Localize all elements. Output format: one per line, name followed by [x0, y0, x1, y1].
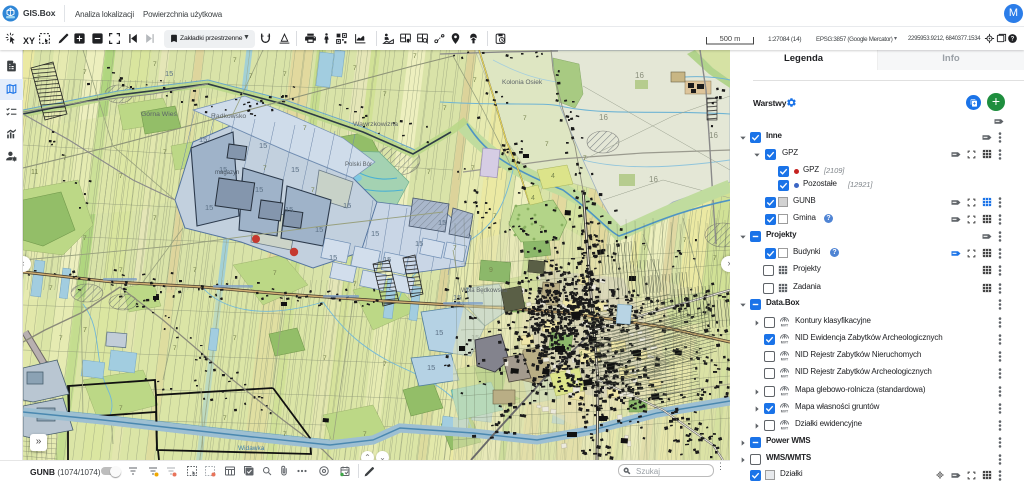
svg-text:7: 7 [249, 73, 253, 80]
svg-text:7: 7 [83, 327, 87, 334]
svg-text:500 m: 500 m [720, 34, 741, 43]
svg-text:15: 15 [259, 141, 267, 150]
svg-text:7: 7 [83, 235, 87, 242]
svg-text:7: 7 [119, 173, 123, 180]
svg-text:16: 16 [649, 175, 658, 184]
svg-text:7: 7 [493, 213, 497, 220]
svg-text:7: 7 [583, 155, 587, 162]
svg-text:7: 7 [49, 285, 53, 292]
svg-text:7: 7 [427, 169, 431, 176]
svg-text:MVT: MVT [781, 357, 789, 361]
svg-text:?: ? [1011, 37, 1015, 43]
svg-text:7: 7 [223, 415, 227, 422]
svg-text:7: 7 [83, 69, 87, 76]
svg-text:16: 16 [709, 131, 718, 140]
svg-text:MVT: MVT [781, 409, 789, 413]
svg-text:4: 4 [551, 173, 555, 180]
svg-text:Kolonia Osiek: Kolonia Osiek [502, 79, 543, 86]
svg-text:7: 7 [153, 215, 157, 222]
svg-text:7: 7 [59, 335, 63, 342]
svg-text:MVT: MVT [781, 392, 789, 396]
svg-text:16: 16 [599, 113, 608, 122]
svg-text:MVT: MVT [781, 340, 789, 344]
svg-text:15: 15 [329, 253, 337, 262]
svg-text:7: 7 [323, 355, 327, 362]
svg-text:Polski Bór: Polski Bór [345, 162, 372, 168]
svg-text:7: 7 [539, 225, 543, 232]
svg-text:MVT: MVT [781, 374, 789, 378]
svg-text:7: 7 [63, 155, 67, 162]
svg-text:7: 7 [303, 125, 307, 132]
svg-text:7: 7 [471, 165, 475, 172]
svg-text:Wawrzkowizna: Wawrzkowizna [353, 121, 398, 128]
svg-text:7: 7 [545, 141, 549, 148]
svg-text:11: 11 [31, 169, 38, 176]
svg-text:15: 15 [285, 205, 293, 214]
svg-text:MVT: MVT [781, 426, 789, 430]
svg-text:7: 7 [119, 405, 123, 412]
svg-text:15: 15 [371, 229, 379, 238]
svg-text:7: 7 [713, 255, 717, 262]
svg-text:7: 7 [119, 267, 123, 274]
svg-text:15: 15 [415, 239, 423, 248]
svg-text:Wola Będkowska: Wola Będkowska [461, 288, 508, 294]
svg-text:7: 7 [173, 345, 177, 352]
svg-text:15: 15 [427, 363, 435, 372]
svg-text:7: 7 [413, 53, 417, 60]
svg-text:7: 7 [683, 237, 687, 244]
svg-text:7: 7 [273, 270, 277, 277]
svg-text:7: 7 [263, 165, 267, 172]
svg-text:9: 9 [489, 267, 493, 274]
svg-text:15: 15 [453, 293, 461, 302]
svg-text:7: 7 [283, 71, 287, 78]
svg-text:Widawka: Widawka [238, 445, 265, 452]
svg-text:7: 7 [37, 75, 41, 82]
svg-text:7: 7 [353, 281, 357, 288]
svg-text:7: 7 [443, 105, 447, 112]
svg-text:15: 15 [205, 203, 213, 212]
svg-text:7: 7 [523, 115, 527, 122]
svg-text:7: 7 [311, 187, 315, 194]
svg-text:7: 7 [363, 431, 367, 438]
svg-text:7: 7 [163, 149, 167, 156]
svg-text:15: 15 [438, 218, 446, 227]
svg-text:Radkowsko: Radkowsko [211, 113, 246, 120]
svg-text:7: 7 [383, 361, 387, 368]
svg-text:7: 7 [233, 57, 237, 64]
svg-text:7: 7 [193, 267, 197, 274]
svg-text:15: 15 [165, 69, 173, 78]
svg-text:7: 7 [283, 431, 287, 438]
svg-text:15: 15 [255, 185, 263, 194]
svg-text:7: 7 [233, 335, 237, 342]
svg-text:15: 15 [435, 328, 443, 337]
svg-text:15: 15 [291, 165, 299, 174]
svg-text:magazyn: magazyn [215, 170, 239, 176]
svg-text:Górna Wieś: Górna Wieś [141, 111, 177, 118]
svg-text:7: 7 [353, 65, 357, 72]
svg-text:7: 7 [473, 77, 477, 84]
svg-text:7: 7 [153, 61, 157, 68]
svg-text:15: 15 [343, 201, 351, 210]
svg-text:7: 7 [383, 91, 387, 98]
svg-text:7: 7 [453, 245, 457, 252]
svg-text:4: 4 [531, 195, 535, 202]
svg-text:7: 7 [643, 245, 647, 252]
svg-text:15: 15 [199, 135, 207, 144]
svg-text:16: 16 [635, 71, 644, 80]
svg-text:MVT: MVT [781, 323, 789, 327]
